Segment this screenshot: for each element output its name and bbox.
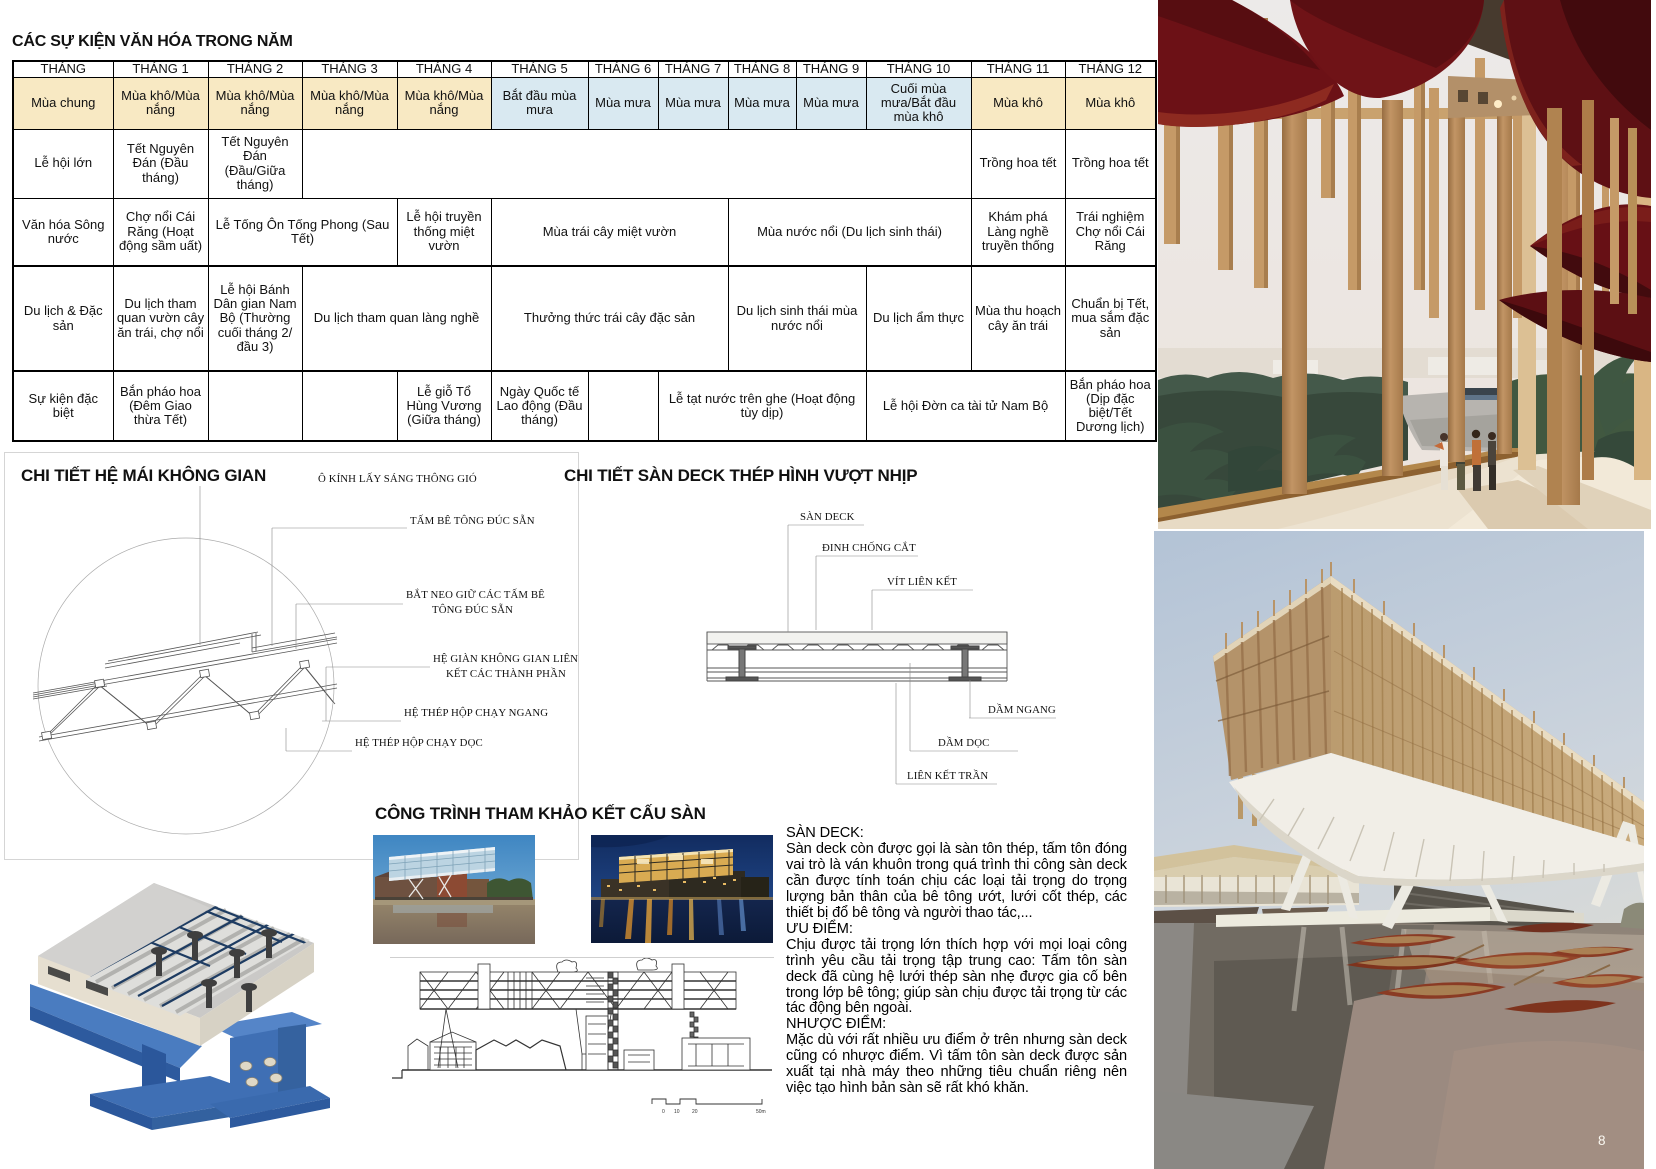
svg-text:HỆ THÉP HỘP CHẠY NGANG: HỆ THÉP HỘP CHẠY NGANG bbox=[404, 707, 548, 719]
svg-text:ĐINH CHỐNG CẮT: ĐINH CHỐNG CẮT bbox=[822, 541, 916, 554]
svg-text:DẦM NGANG: DẦM NGANG bbox=[988, 703, 1056, 716]
svg-text:KẾT CÁC THÀNH PHẦN: KẾT CÁC THÀNH PHẦN bbox=[446, 667, 566, 680]
svg-text:HỆ THÉP HỘP CHẠY DỌC: HỆ THÉP HỘP CHẠY DỌC bbox=[355, 737, 483, 749]
svg-text:10: 10 bbox=[674, 1109, 680, 1115]
svg-text:BẮT NEO GIỮ CÁC TẤM BÊ: BẮT NEO GIỮ CÁC TẤM BÊ bbox=[406, 588, 545, 601]
svg-text:TẤM BÊ TÔNG ĐÚC SẴN: TẤM BÊ TÔNG ĐÚC SẴN bbox=[410, 514, 535, 527]
svg-text:8: 8 bbox=[1598, 1133, 1606, 1148]
svg-text:HỆ GIÀN KHÔNG GIAN LIÊN: HỆ GIÀN KHÔNG GIAN LIÊN bbox=[433, 653, 578, 665]
svg-text:Ô KÍNH LẤY SÁNG THÔNG GIÓ: Ô KÍNH LẤY SÁNG THÔNG GIÓ bbox=[318, 472, 477, 485]
svg-text:20: 20 bbox=[692, 1109, 698, 1115]
svg-text:SÀN DECK: SÀN DECK bbox=[800, 511, 855, 523]
svg-text:DẦM DỌC: DẦM DỌC bbox=[938, 736, 989, 749]
svg-text:LIÊN KẾT TRẦN: LIÊN KẾT TRẦN bbox=[907, 769, 988, 782]
svg-text:VÍT LIÊN KẾT: VÍT LIÊN KẾT bbox=[887, 575, 957, 588]
svg-text:50m: 50m bbox=[756, 1109, 766, 1115]
svg-text:0: 0 bbox=[662, 1109, 665, 1115]
svg-text:TÔNG ĐÚC SẴN: TÔNG ĐÚC SẴN bbox=[432, 603, 513, 616]
